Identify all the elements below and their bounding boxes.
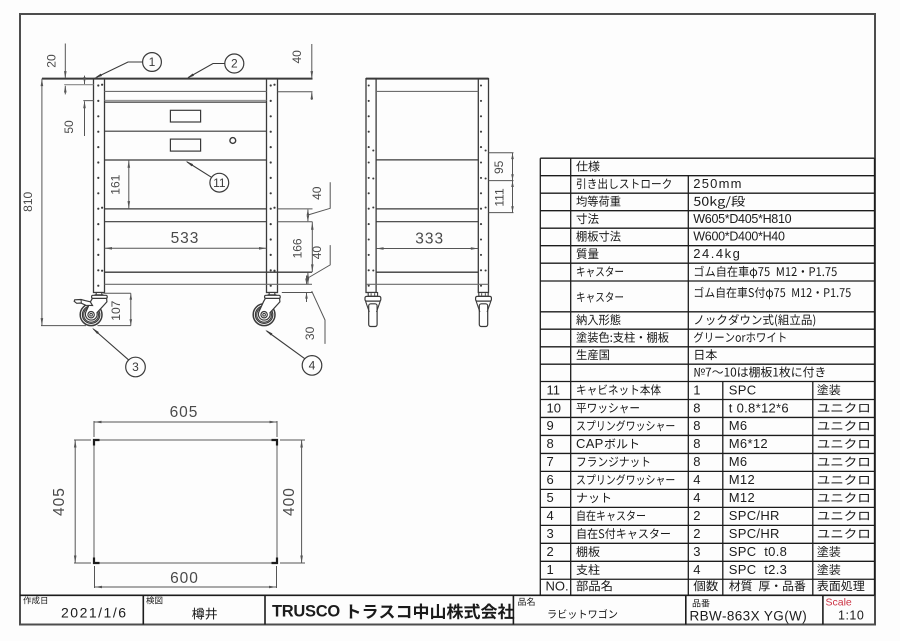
- svg-text:95: 95: [492, 160, 506, 174]
- svg-text:8: 8: [693, 454, 700, 469]
- svg-text:Scale: Scale: [826, 597, 852, 609]
- svg-text:NO.: NO.: [546, 578, 569, 593]
- svg-text:2: 2: [547, 544, 554, 559]
- svg-text:W605*D405*H810: W605*D405*H810: [693, 212, 791, 226]
- svg-text:40: 40: [310, 246, 324, 260]
- svg-text:250mm: 250mm: [693, 176, 742, 191]
- svg-text:CAP: CAP: [576, 436, 604, 451]
- svg-text:3: 3: [693, 544, 700, 559]
- svg-text:50: 50: [62, 120, 76, 134]
- svg-text:SPC/HR: SPC/HR: [729, 508, 780, 523]
- svg-text:2: 2: [693, 508, 700, 523]
- svg-text:161: 161: [109, 174, 123, 194]
- svg-text:M12: M12: [729, 472, 755, 487]
- svg-text:400: 400: [281, 487, 298, 516]
- svg-text:M6: M6: [729, 418, 748, 433]
- svg-text:111: 111: [493, 188, 507, 207]
- svg-text:SPC: SPC: [729, 382, 757, 397]
- svg-text:7: 7: [547, 454, 554, 469]
- svg-text:SPC t0.8: SPC t0.8: [729, 544, 787, 559]
- svg-text:1: 1: [149, 55, 156, 69]
- svg-text:SPC/HR: SPC/HR: [729, 526, 780, 541]
- svg-text:1:10: 1:10: [838, 609, 864, 623]
- svg-text:3: 3: [547, 526, 554, 541]
- svg-text:40: 40: [290, 50, 304, 64]
- svg-text:M6: M6: [729, 454, 748, 469]
- svg-text:9: 9: [547, 418, 554, 433]
- svg-text:8: 8: [693, 400, 700, 415]
- svg-text:SPC t2.3: SPC t2.3: [729, 562, 787, 577]
- svg-text:TRUSCO: TRUSCO: [272, 603, 340, 621]
- svg-text:405: 405: [51, 487, 68, 516]
- svg-text:RBW-863X YG(W): RBW-863X YG(W): [690, 609, 808, 624]
- svg-text:1: 1: [693, 382, 700, 397]
- svg-text:4: 4: [693, 490, 700, 505]
- svg-text:M6*12: M6*12: [729, 436, 768, 451]
- svg-text:11: 11: [213, 176, 226, 190]
- svg-text:2: 2: [231, 57, 238, 71]
- svg-text:10: 10: [547, 400, 561, 415]
- svg-text:4: 4: [309, 359, 316, 373]
- svg-text:333: 333: [415, 231, 444, 248]
- svg-text:3: 3: [132, 360, 139, 374]
- svg-text:8: 8: [693, 436, 700, 451]
- svg-text:107: 107: [109, 300, 123, 320]
- svg-text:166: 166: [291, 238, 305, 258]
- svg-text:11: 11: [547, 382, 561, 397]
- svg-text:4: 4: [693, 562, 700, 577]
- svg-text:W600*D400*H40: W600*D400*H40: [693, 230, 785, 244]
- svg-text:600: 600: [170, 570, 199, 587]
- svg-text:533: 533: [171, 230, 200, 247]
- svg-text:2021/1/6: 2021/1/6: [61, 605, 128, 621]
- svg-text:810: 810: [21, 191, 35, 211]
- svg-text:1: 1: [547, 562, 554, 577]
- svg-text:2: 2: [693, 526, 700, 541]
- svg-text:8: 8: [693, 418, 700, 433]
- svg-text:8: 8: [547, 436, 554, 451]
- svg-text:5: 5: [547, 490, 554, 505]
- svg-text:20: 20: [45, 54, 59, 68]
- svg-text:24.4kg: 24.4kg: [693, 246, 741, 261]
- svg-text:30: 30: [303, 326, 317, 340]
- svg-text:t 0.8*12*6: t 0.8*12*6: [729, 400, 789, 415]
- svg-text:40: 40: [310, 186, 324, 200]
- svg-text:4: 4: [693, 472, 700, 487]
- svg-text:4: 4: [547, 508, 554, 523]
- svg-text:6: 6: [547, 472, 554, 487]
- svg-text:M12: M12: [729, 490, 755, 505]
- svg-text:605: 605: [170, 404, 199, 421]
